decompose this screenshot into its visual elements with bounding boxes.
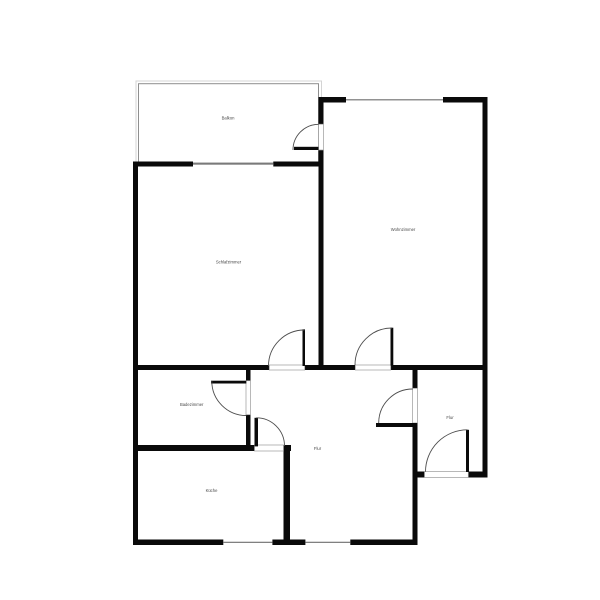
svg-text:Küche: Küche <box>206 488 219 493</box>
svg-text:Flur: Flur <box>314 446 322 451</box>
svg-text:Schlafzimmer: Schlafzimmer <box>216 260 242 265</box>
svg-text:Badezimmer: Badezimmer <box>180 402 204 407</box>
svg-text:Balkon: Balkon <box>222 116 235 121</box>
svg-text:Wohnzimmer: Wohnzimmer <box>391 227 416 232</box>
svg-text:Flur: Flur <box>446 415 454 420</box>
